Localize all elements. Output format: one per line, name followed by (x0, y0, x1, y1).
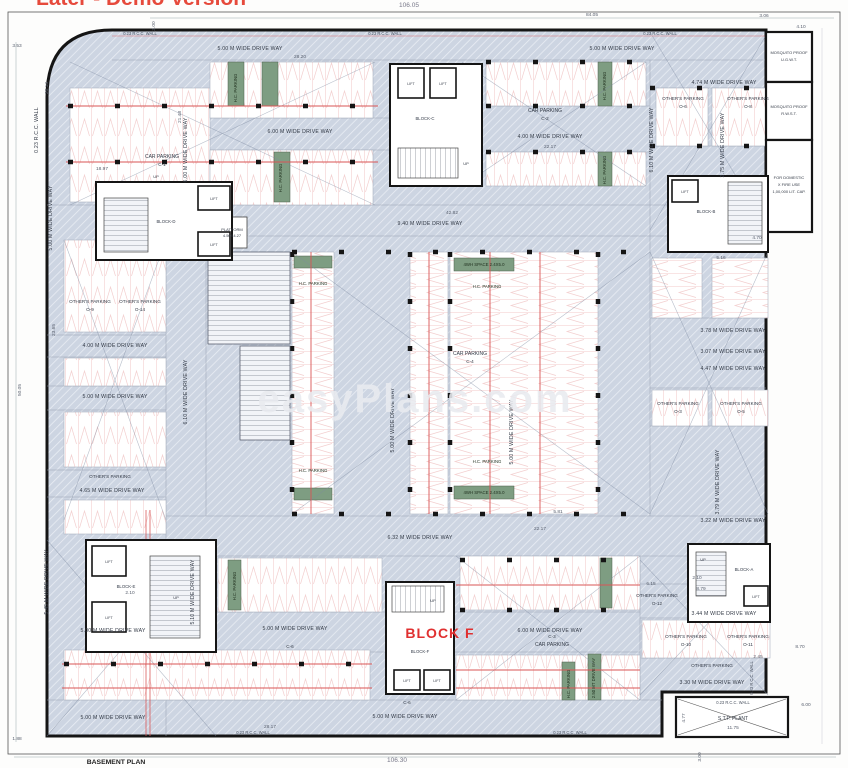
wall-label: 0.23 R.C.C. WALL (236, 730, 270, 735)
dim-label: 18.97 (96, 166, 108, 172)
wall-label: 0.23 R.C.C. WALL (749, 661, 754, 695)
car-parking-label: CAR PARKING (528, 108, 562, 114)
dim-label: 5.16 (716, 255, 726, 261)
tank-label: R.W.S.T. (781, 111, 797, 116)
driveway-label: 4.47 M WIDE DRIVE WAY (700, 366, 765, 372)
driveway-label: 3.07 M WIDE DRIVE WAY (700, 349, 765, 355)
hc-parking-label: H.C. PARKING (602, 155, 607, 184)
dim-label: 42.82 (446, 210, 458, 216)
hc-parking-label: H.C. PARKING (473, 284, 502, 289)
lift-label: LIFT (439, 82, 447, 86)
driveway-label: 3.78 M WIDE DRIVE WAY (700, 328, 765, 334)
others-parking-label: OTHER'S PARKING (636, 593, 678, 598)
block-c (390, 64, 482, 186)
site-watermark: easyPlans.com (257, 377, 572, 421)
hc-space-label: 4WH SPACE 2.4X5.0 (464, 490, 506, 495)
others-parking-label: OTHER'S PARKING (119, 299, 161, 304)
dim-label: 106.05 (399, 2, 419, 9)
driveway-label: 5.10 M WIDE DRIVE WAY (190, 559, 196, 624)
dim-label: 3.00 (151, 21, 157, 31)
driveway-label: 5.00 M WIDE DRIVE WAY (82, 394, 147, 400)
parking-bay (64, 650, 370, 700)
wall-label: 0.23 R.C.C. WALL (716, 700, 750, 705)
others-parking-label: OTHER'S PARKING (665, 634, 707, 639)
parking-bay (64, 412, 166, 467)
lift-label: LIFT (681, 190, 689, 194)
driveway-label: 5.45 M WIDE DRIVE WAY (44, 549, 50, 614)
driveway-label: 3.30 M WIDE DRIVE WAY (679, 680, 744, 686)
hc-strip (600, 558, 612, 608)
driveway-label: 6.00 M WIDE DRIVE WAY (183, 117, 189, 182)
dim-label: 20.13 (44, 82, 50, 94)
parking-code: O-9 (86, 307, 94, 312)
stair (104, 198, 148, 252)
lift-label: LIFT (105, 616, 113, 620)
dim-label: 28.17 (264, 724, 276, 730)
parking-bay (64, 500, 166, 534)
stp-dim: 4.77 (681, 713, 687, 723)
parking-code: O-6 (679, 104, 687, 109)
driveway-label: 5.00 M WIDE DRIVE WAY (262, 626, 327, 632)
hc-parking-label: H.C. PARKING (299, 281, 328, 286)
wall-label: 0.23 R.C.C. WALL (34, 107, 40, 153)
parking-code: O-8 (744, 104, 752, 109)
stp-dim: 11.75 (727, 725, 739, 731)
dim-label: 8.70 (795, 644, 805, 650)
car-parking-label: CAR PARKING (453, 351, 487, 357)
plan-title: BASEMENT PLAN (87, 759, 146, 766)
dim-label: 8.79 (696, 586, 706, 592)
hc-space-label: 4WH SPACE 2.4X5.0 (464, 262, 506, 267)
ramp (208, 252, 290, 344)
others-parking-label: OTHER'S PARKING (657, 401, 699, 406)
lift-label: LIFT (210, 197, 218, 201)
others-parking-label: OTHER'S PARKING (727, 96, 769, 101)
parking-code: O-5 (737, 409, 745, 414)
car-parking-label: CAR PARKING (535, 642, 569, 648)
up-label: UP (463, 161, 469, 166)
parking-code: O-3 (674, 409, 682, 414)
hc-parking-label: H.C. PARKING (278, 163, 283, 192)
block-e-label: BLOCK-E (117, 584, 136, 589)
parking-bay (652, 390, 708, 426)
up-label: UP (153, 174, 159, 179)
hc-parking-label: H.C. PARKING (602, 71, 607, 100)
others-parking-label: OTHER'S PARKING (662, 96, 704, 101)
parking-code: C-6 (403, 700, 411, 705)
demo-version-watermark: Later - Demo Version (36, 0, 246, 10)
lift-label: LIFT (105, 560, 113, 564)
driveway-label: 9.40 M WIDE DRIVE WAY (397, 221, 462, 227)
dim-label: 3.06 (759, 13, 769, 19)
block-b-label: BLOCK-B (697, 209, 716, 214)
driveway-label: 5.00 M WIDE DRIVE WAY (48, 185, 54, 250)
tank-label: 1,00,000 LIT. CAP. (772, 189, 805, 194)
hc-strip (294, 488, 332, 500)
parking-bay (486, 152, 646, 186)
driveway-label: 4.74 M WIDE DRIVE WAY (691, 80, 756, 86)
water-tanks (766, 32, 812, 232)
parking-bay (64, 358, 166, 386)
lift-label: LIFT (433, 679, 441, 683)
dim-label: 50.05 (17, 384, 23, 396)
parking-bay (712, 258, 768, 318)
tank-label: FOR DOMESTIC (774, 175, 805, 180)
dim-label: 21.48 (177, 111, 183, 123)
dim-label: 4.70 (752, 235, 762, 241)
parking-bay (460, 556, 640, 610)
driveway-label: 3.22 M WIDE DRIVE WAY (700, 518, 765, 524)
dim-label: 106.30 (387, 757, 407, 764)
driveway-label: 6.32 M WIDE DRIVE WAY (387, 535, 452, 541)
parking-code: O-14 (135, 307, 146, 312)
hc-parking-label: H.C. PARKING (233, 73, 238, 102)
driveway-label: 6.00 M WIDE DRIVE WAY (267, 129, 332, 135)
parking-bay (210, 150, 373, 205)
wall-label: 0.23 R.C.C. WALL (368, 31, 402, 36)
block-f-label: BLOCK-F (411, 649, 430, 654)
block-e (86, 540, 216, 652)
platform-label: PLATFORM (221, 227, 242, 232)
parking-code: C-2 (541, 116, 549, 121)
hc-strip (262, 62, 278, 106)
parking-bay (652, 258, 702, 318)
parking-code: C-1 (158, 162, 166, 167)
dim-label: 2.10 (692, 575, 702, 581)
lift-label: LIFT (407, 82, 415, 86)
dim-label: 23.65 (51, 324, 57, 336)
drawing-sheet: 5.00 M WIDE DRIVE WAY 5.00 M WIDE DRIVE … (0, 0, 848, 768)
driveway-label: 2.50 MT DRIVE WAY (591, 658, 596, 699)
parking-code: C-6 (286, 644, 294, 649)
dim-label: 5.81 (553, 509, 563, 515)
driveway-label: 3.44 M WIDE DRIVE WAY (691, 611, 756, 617)
stair (392, 586, 444, 612)
parking-bay (486, 62, 646, 106)
dim-label: 22.17 (534, 526, 546, 532)
others-parking-label: OTHER'S PARKING (727, 634, 769, 639)
block-a-label: BLOCK-A (735, 567, 754, 572)
lift-label: LIFT (403, 679, 411, 683)
block-d-label: BLOCK-D (156, 219, 175, 224)
parking-bay (218, 558, 382, 612)
parking-code: C-3 (548, 634, 556, 639)
driveway-label: 4.00 M WIDE DRIVE WAY (517, 134, 582, 140)
parking-bay (456, 655, 640, 700)
dim-label: 4.10 (796, 24, 806, 30)
dim-label: 84.05 (586, 12, 598, 18)
hc-parking-label: H.C. PARKING (473, 459, 502, 464)
driveway-label: 4.65 M WIDE DRIVE WAY (79, 488, 144, 494)
wall-label: 0.23 R.C.C. WALL (553, 730, 587, 735)
tank-label: U.G.W.T. (781, 57, 797, 62)
parking-code: O-10 (681, 642, 692, 647)
dim-label: 6.00 (801, 702, 811, 708)
tank-label: X FIRE USE (778, 182, 801, 187)
car-parking-label: CAR PARKING (145, 154, 179, 160)
driveway-label: 5.00 M WIDE DRIVE WAY (217, 46, 282, 52)
tank-label: MOSQUITO PROOF (770, 104, 808, 109)
tank-label: MOSQUITO PROOF (770, 50, 808, 55)
driveway-label: 5.00 M WIDE DRIVE WAY (80, 628, 145, 634)
up-label: UP (430, 598, 436, 603)
block-f-title: BLOCK F (405, 625, 474, 641)
driveway-label: 4.00 M WIDE DRIVE WAY (82, 343, 147, 349)
up-label: UP (173, 595, 179, 600)
driveway-label: 6.10 M WIDE DRIVE WAY (183, 359, 189, 424)
parking-code: O-12 (652, 601, 663, 606)
driveway-label: 5.00 M WIDE DRIVE WAY (80, 715, 145, 721)
lift-label: LIFT (210, 243, 218, 247)
others-parking-label: OTHER'S PARKING (720, 401, 762, 406)
dim-label: 2.10 (125, 590, 135, 596)
driveway-label: 2.75 M WIDE DRIVE WAY (720, 112, 726, 177)
dim-label: 3.00 (697, 752, 703, 762)
hc-parking-label: H.C. PARKING (232, 571, 237, 600)
basement-plan-drawing: 5.00 M WIDE DRIVE WAY 5.00 M WIDE DRIVE … (0, 0, 848, 768)
driveway-label: 6.10 M WIDE DRIVE WAY (649, 107, 655, 172)
stp-label: S.T.P. PLANT (718, 716, 748, 722)
up-label: UP (700, 557, 706, 562)
others-parking-label: OTHER'S PARKING (69, 299, 111, 304)
driveway-label: 5.00 M WIDE DRIVE WAY (589, 46, 654, 52)
wall-label: 0.23 R.C.C. WALL (123, 31, 157, 36)
dim-label: 28.20 (294, 54, 306, 60)
stair (728, 182, 762, 244)
parking-code: C-4 (466, 359, 474, 364)
lift-label: LIFT (752, 595, 760, 599)
stair (398, 148, 458, 178)
driveway-label: 5.00 M WIDE DRIVE WAY (372, 714, 437, 720)
others-parking-label: OTHER'S PARKING (691, 663, 733, 668)
others-parking-label: OTHER'S PARKING (89, 474, 131, 479)
parking-code: O-11 (743, 642, 753, 647)
dim-label: 1.88 (12, 736, 22, 742)
dim-label: 3.53 (12, 43, 22, 49)
dim-label: 6.15 (646, 581, 656, 587)
dim-label: 2.45 (753, 654, 763, 660)
wall-label: 0.23 R.C.C. WALL (643, 31, 677, 36)
platform-dim: 4.50X4.27 (223, 233, 242, 238)
hc-parking-label: H.C. PARKING (299, 468, 328, 473)
driveway-label: 3.79 M WIDE DRIVE WAY (715, 449, 721, 514)
hc-parking-label: H.C. PARKING (566, 669, 571, 698)
dim-label: 22.17 (544, 144, 556, 150)
block-c-label: BLOCK-C (415, 116, 434, 121)
